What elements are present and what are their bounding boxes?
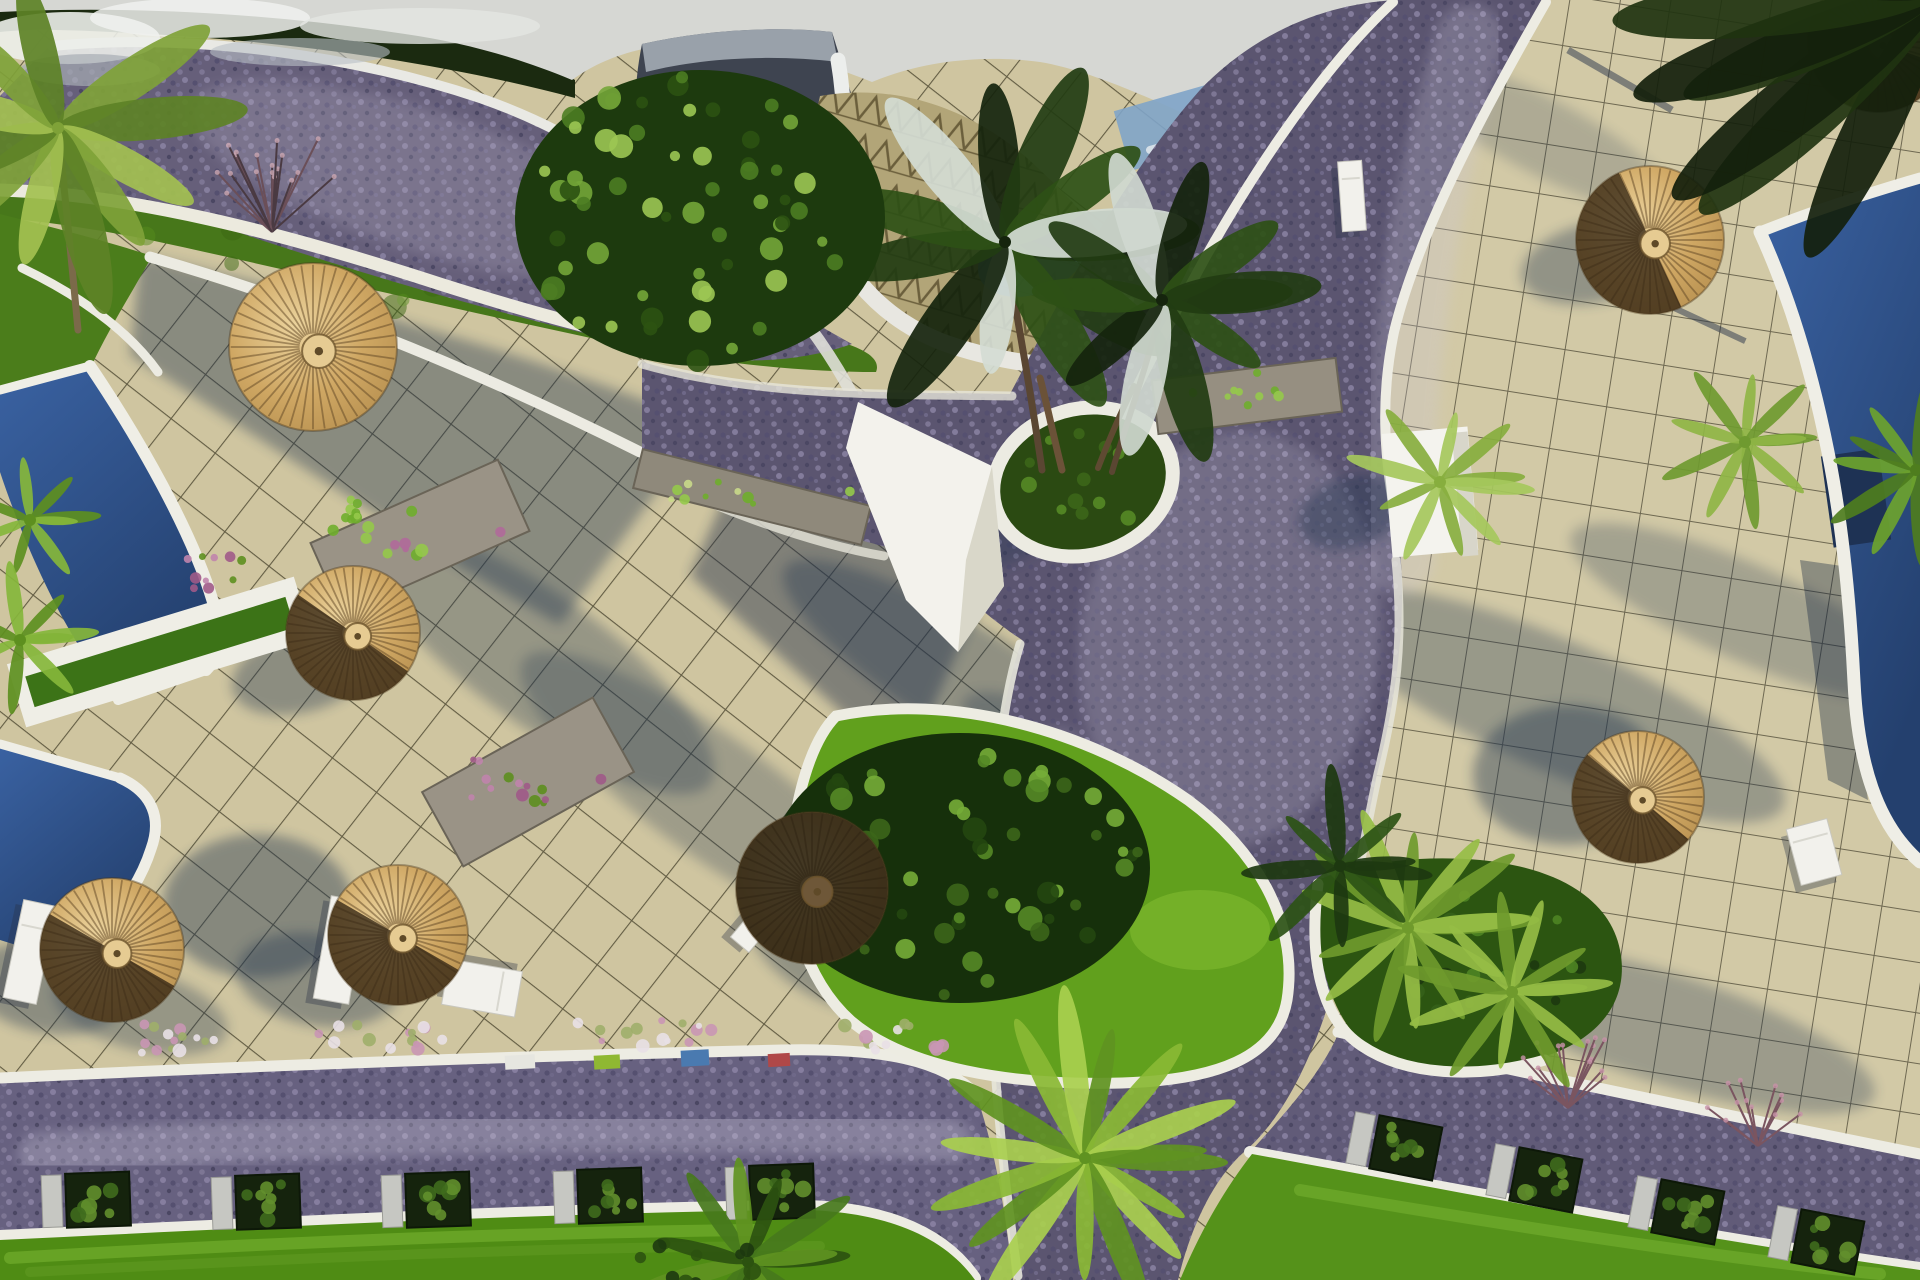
road-planter-box [211, 1174, 301, 1231]
mini-planter-white [505, 1054, 536, 1070]
road-planter-box [553, 1168, 643, 1225]
mini-planter-blue [681, 1049, 710, 1066]
straw-parasol [229, 263, 397, 431]
lawn-island-light [1130, 890, 1270, 970]
cloud [300, 8, 540, 44]
road-planter-box [41, 1172, 131, 1229]
mini-planter-green [594, 1054, 621, 1069]
resort-aerial-render [0, 0, 1920, 1280]
scene-layers [0, 0, 1920, 1280]
straw-parasol-shaded [736, 812, 888, 964]
mini-planter-red [768, 1053, 791, 1067]
sun-lounger [1331, 160, 1367, 238]
road-bottom-sunwash [40, 1129, 950, 1155]
scene-svg [0, 0, 1920, 1280]
road-planter-box [381, 1172, 471, 1229]
cloud-shadow [210, 38, 390, 66]
